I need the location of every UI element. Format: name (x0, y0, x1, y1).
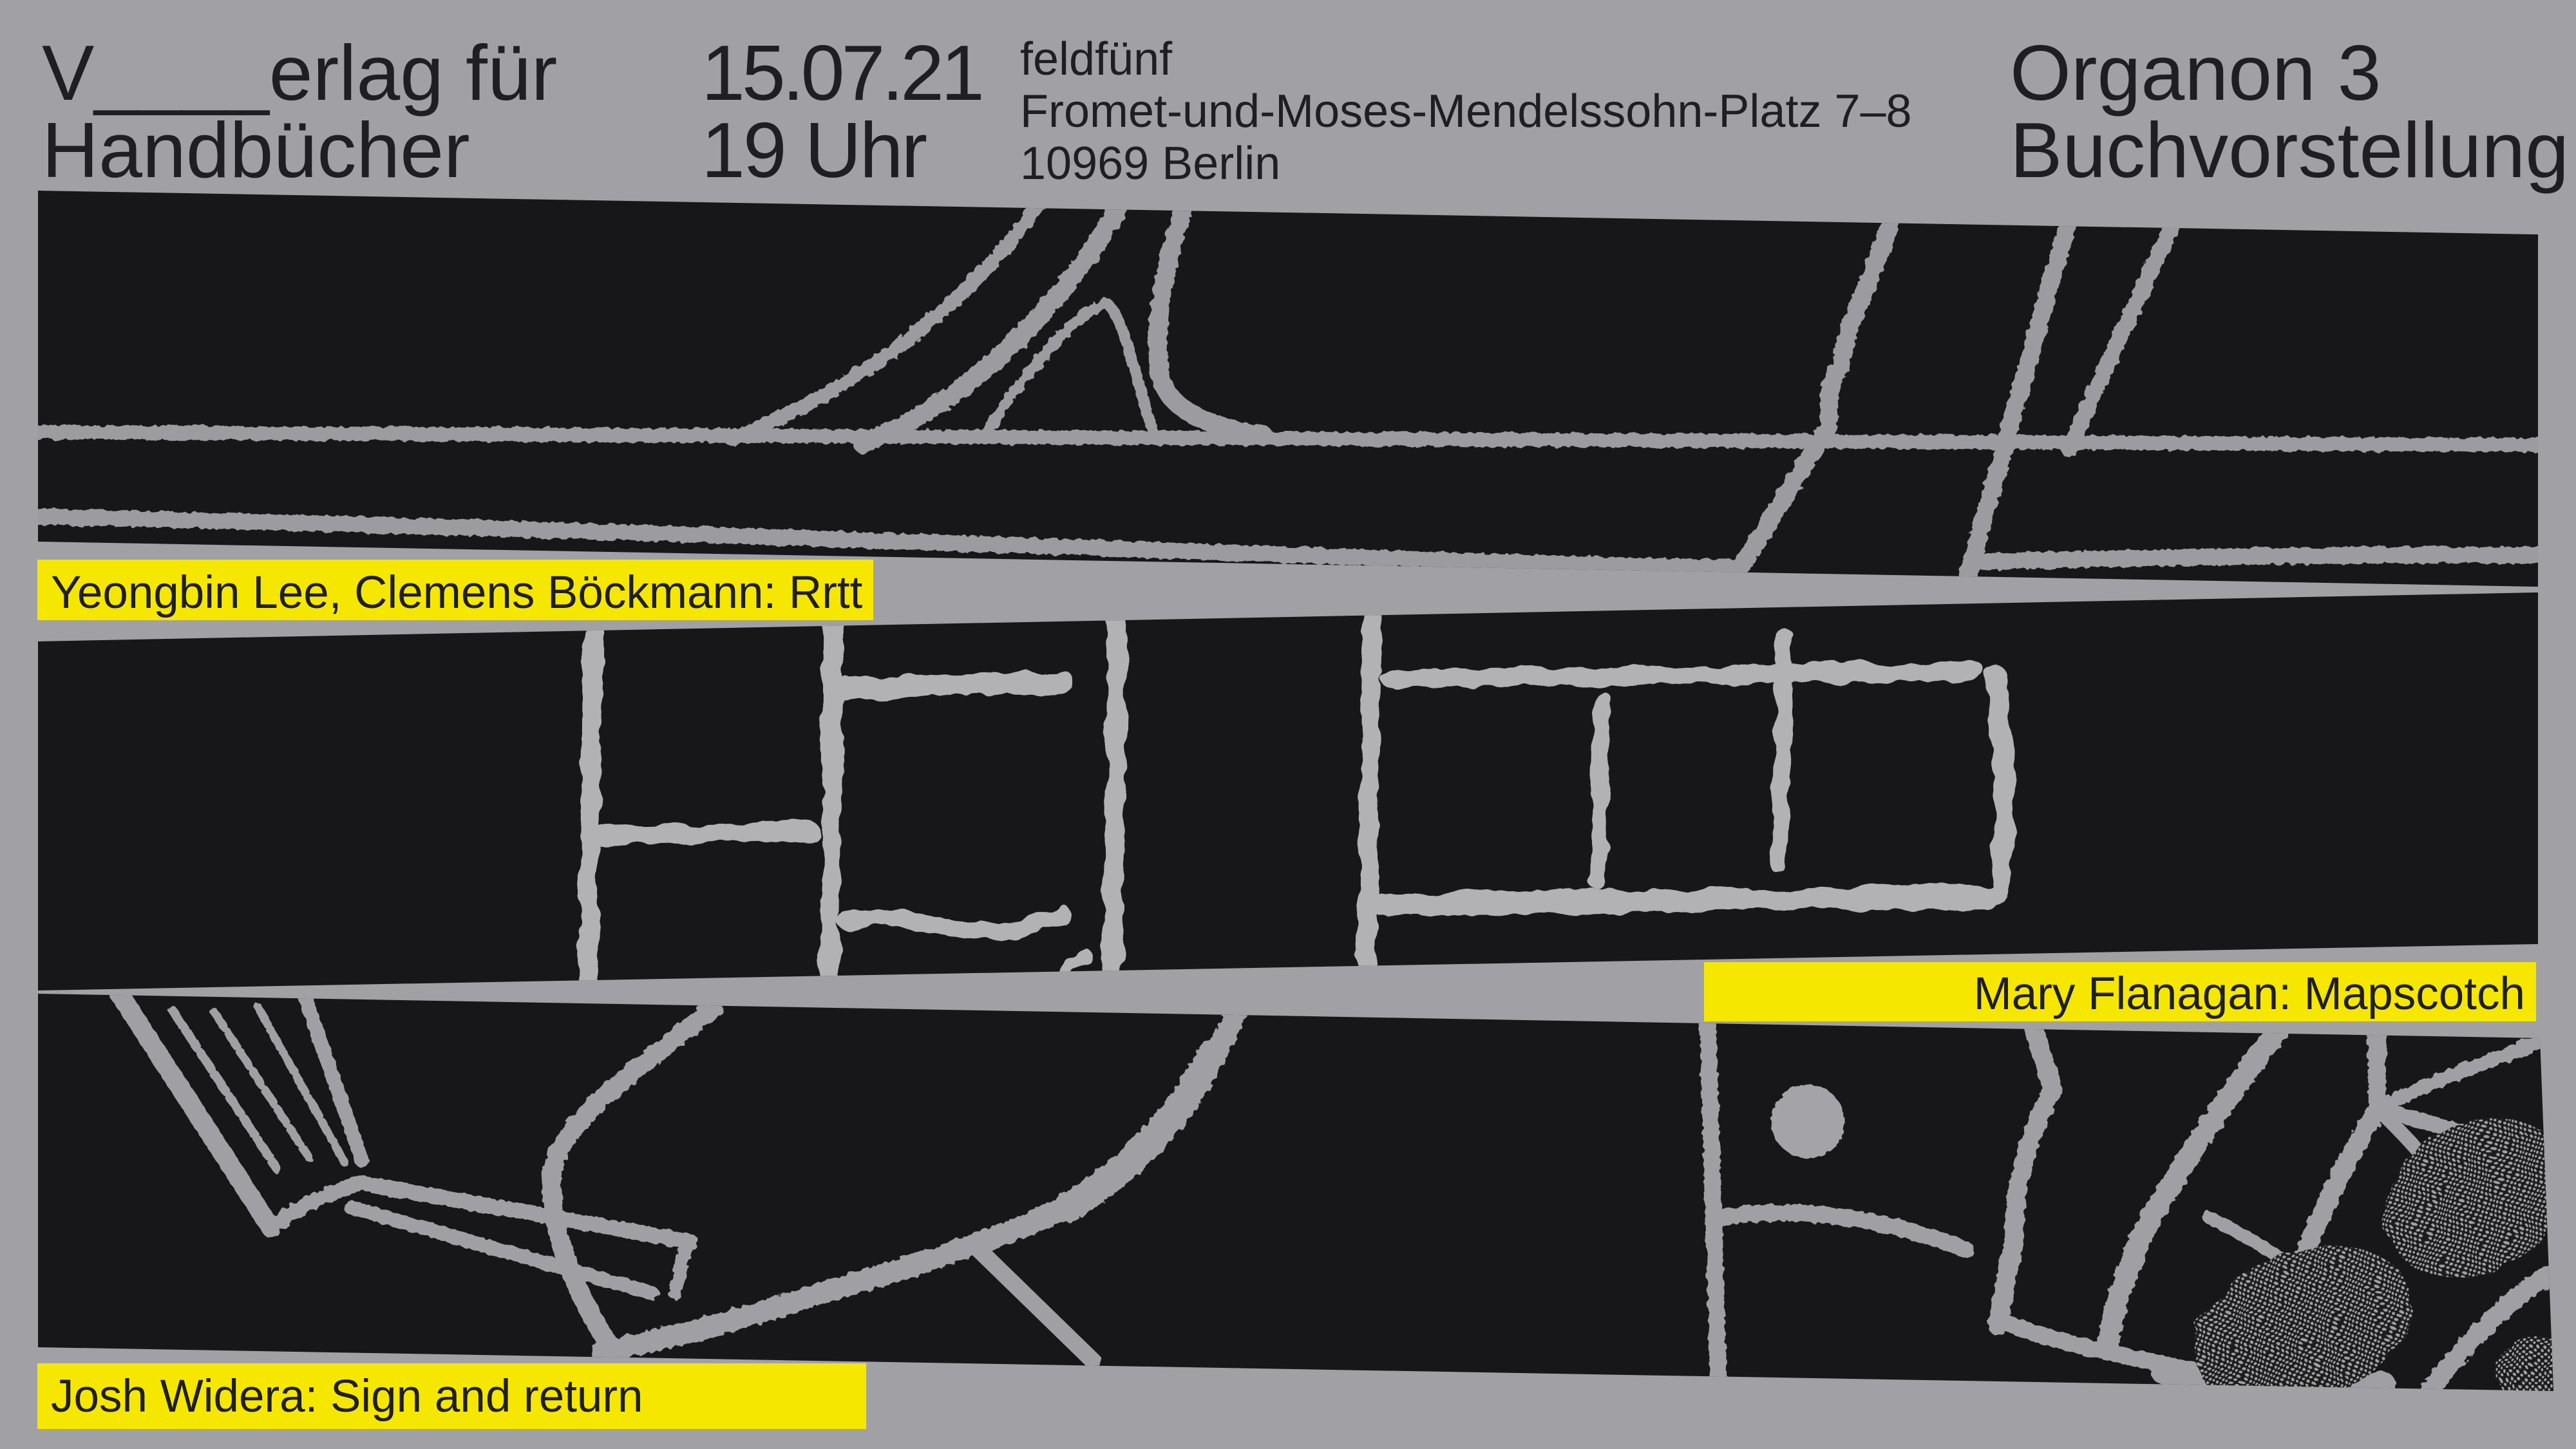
svg-text:feldfünf: feldfünf (1020, 33, 1173, 85)
svg-text:Mary Flanagan: Mapscotch: Mary Flanagan: Mapscotch (1974, 969, 2525, 1019)
svg-text:Yeongbin Lee, Clemens Böckmann: Yeongbin Lee, Clemens Böckmann: Rrtt (51, 567, 863, 618)
svg-text:Organon 3: Organon 3 (2010, 29, 2382, 117)
svg-text:Handbücher: Handbücher (42, 106, 470, 194)
svg-text:Fromet-und-Moses-Mendelssohn-P: Fromet-und-Moses-Mendelssohn-Platz 7–8 (1020, 86, 1912, 137)
svg-text:19 Uhr: 19 Uhr (701, 106, 927, 194)
svg-text:Josh Widera: Sign and return: Josh Widera: Sign and return (51, 1371, 643, 1422)
svg-text:10969 Berlin: 10969 Berlin (1020, 138, 1280, 189)
svg-text:Buchvorstellung: Buchvorstellung (2010, 106, 2569, 194)
svg-text:V____erlag für: V____erlag für (42, 29, 557, 117)
svg-text:15.07.21: 15.07.21 (701, 29, 981, 117)
